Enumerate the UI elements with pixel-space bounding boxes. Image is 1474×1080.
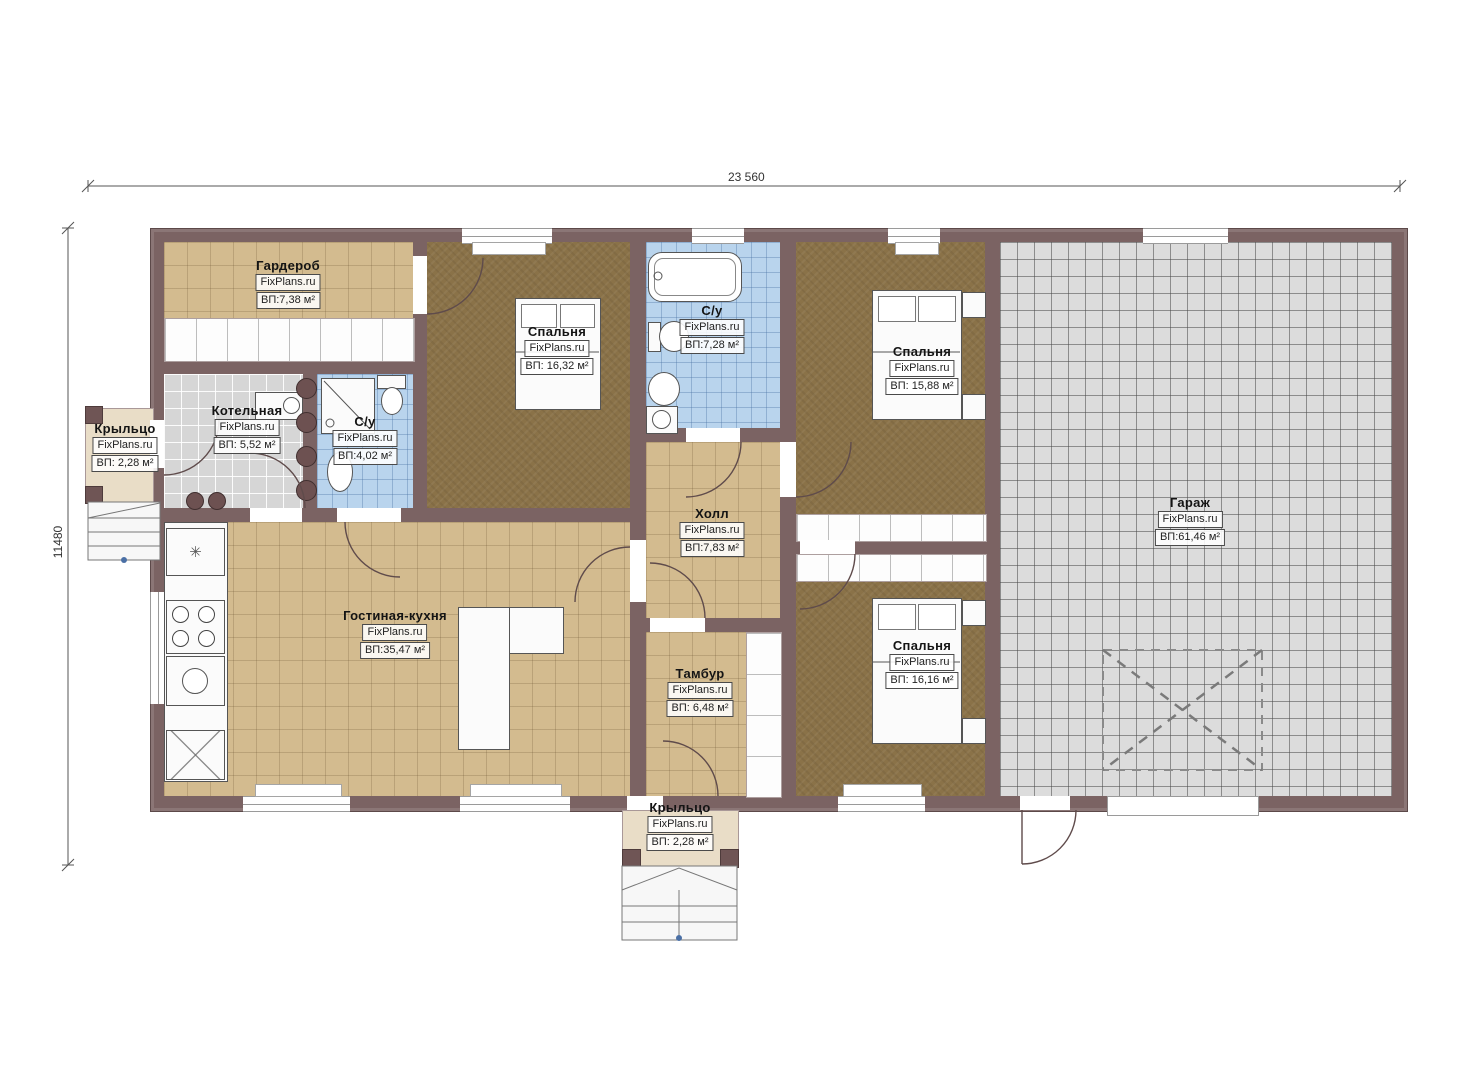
room-name: Гараж <box>1170 495 1210 510</box>
watermark: FixPlans.ru <box>679 319 744 336</box>
floor-plan: 23 560 11480 <box>0 0 1474 1080</box>
room-area: ВП: 2,28 м² <box>91 455 158 472</box>
pillow <box>918 604 956 630</box>
room-area: ВП:35,47 м² <box>360 642 430 659</box>
pillow <box>878 604 916 630</box>
garage-gate <box>1107 796 1259 816</box>
door-opening-bedroom-3 <box>800 540 855 554</box>
nightstand <box>962 600 986 626</box>
toilet-symbol <box>381 387 403 415</box>
watermark: FixPlans.ru <box>679 522 744 539</box>
watermark: FixPlans.ru <box>214 419 279 436</box>
window <box>838 796 925 812</box>
bedroom-2-wardrobe <box>796 514 987 542</box>
watermark: FixPlans.ru <box>524 340 589 357</box>
watermark: FixPlans.ru <box>362 624 427 641</box>
watermark: FixPlans.ru <box>92 437 157 454</box>
room-area: ВП:7,28 м² <box>680 337 744 354</box>
room-area: ВП: 6,48 м² <box>666 700 733 717</box>
dimension-top-label: 23 560 <box>728 170 765 184</box>
garage-side-door <box>1020 796 1070 810</box>
room-label-garderob: Гардероб FixPlans.ru ВП:7,38 м² <box>255 258 320 309</box>
radiator <box>895 242 939 255</box>
room-label-porch-bottom: Крыльцо FixPlans.ru ВП: 2,28 м² <box>646 800 713 851</box>
pillow <box>878 296 916 322</box>
room-floor-living-kitchen <box>164 522 630 796</box>
watermark: FixPlans.ru <box>332 430 397 447</box>
door-opening-bedroom-1 <box>413 256 427 314</box>
watermark: FixPlans.ru <box>255 274 320 291</box>
window <box>1143 228 1228 244</box>
room-label-boiler: Котельная FixPlans.ru ВП: 5,52 м² <box>212 403 283 454</box>
room-label-hall: Холл FixPlans.ru ВП:7,83 м² <box>679 506 744 557</box>
room-label-tambur: Тамбур FixPlans.ru ВП: 6,48 м² <box>666 666 733 717</box>
room-area: ВП: 2,28 м² <box>646 834 713 851</box>
radiator <box>843 784 922 797</box>
nightstand <box>962 394 986 420</box>
room-area: ВП: 15,88 м² <box>885 378 958 395</box>
dimension-left-label: 11480 <box>51 526 65 558</box>
pillow <box>918 296 956 322</box>
room-name: Крыльцо <box>649 800 710 815</box>
sink-symbol <box>648 372 680 406</box>
room-label-bedroom-1: Спальня FixPlans.ru ВП: 16,32 м² <box>520 324 593 375</box>
porch-pillar <box>622 849 641 868</box>
boiler-unit <box>186 492 204 510</box>
door-opening-bedroom-2 <box>780 442 796 497</box>
bedroom-3-wardrobe <box>796 554 987 582</box>
fridge-symbol: ✳ <box>166 528 225 576</box>
room-area: ВП: 5,52 м² <box>213 437 280 454</box>
radiator <box>255 784 342 797</box>
window <box>692 228 744 244</box>
porch-pillar <box>720 849 739 868</box>
cabinet-symbol <box>166 730 225 780</box>
watermark: FixPlans.ru <box>889 360 954 377</box>
radiator <box>470 784 562 797</box>
door-opening-bathroom-small <box>337 508 401 522</box>
room-area: ВП: 16,16 м² <box>885 672 958 689</box>
room-label-porch-left: Крыльцо FixPlans.ru ВП: 2,28 м² <box>91 421 158 472</box>
room-area: ВП: 16,32 м² <box>520 358 593 375</box>
room-name: Холл <box>695 506 729 521</box>
room-label-bathroom-top: С/у FixPlans.ru ВП:7,28 м² <box>679 303 744 354</box>
room-name: Гардероб <box>256 258 320 273</box>
room-name: Гостиная-кухня <box>343 608 447 623</box>
door-opening-boiler <box>250 508 302 522</box>
nightstand <box>962 292 986 318</box>
passage-hall-living <box>630 540 646 602</box>
room-name: Котельная <box>212 403 283 418</box>
room-name: С/у <box>701 303 722 318</box>
wardrobe-shelves <box>164 318 415 362</box>
sofa-symbol <box>458 607 510 750</box>
door-opening-tambur <box>650 618 705 632</box>
watermark: FixPlans.ru <box>889 654 954 671</box>
room-name: Крыльцо <box>94 421 155 436</box>
tambur-closet <box>746 632 782 798</box>
watermark: FixPlans.ru <box>647 816 712 833</box>
window <box>243 796 350 812</box>
room-name: Тамбур <box>676 666 725 681</box>
room-area: ВП:4,02 м² <box>333 448 397 465</box>
room-label-garage: Гараж FixPlans.ru ВП:61,46 м² <box>1155 495 1225 546</box>
room-label-bedroom-3: Спальня FixPlans.ru ВП: 16,16 м² <box>885 638 958 689</box>
room-name: Спальня <box>893 638 951 653</box>
nightstand <box>962 718 986 744</box>
window <box>460 796 570 812</box>
bathtub-symbol <box>648 252 742 302</box>
radiator <box>472 242 546 255</box>
porch-pillar <box>85 486 103 504</box>
room-name: С/у <box>354 414 375 429</box>
room-area: ВП:7,38 м² <box>256 292 320 309</box>
room-label-living-kitchen: Гостиная-кухня FixPlans.ru ВП:35,47 м² <box>343 608 447 659</box>
watermark: FixPlans.ru <box>1157 511 1222 528</box>
room-area: ВП:7,83 м² <box>680 540 744 557</box>
room-label-bathroom-small: С/у FixPlans.ru ВП:4,02 м² <box>332 414 397 465</box>
room-label-bedroom-2: Спальня FixPlans.ru ВП: 15,88 м² <box>885 344 958 395</box>
watermark: FixPlans.ru <box>667 682 732 699</box>
boiler-unit <box>208 492 226 510</box>
room-area: ВП:61,46 м² <box>1155 529 1225 546</box>
room-name: Спальня <box>893 344 951 359</box>
room-name: Спальня <box>528 324 586 339</box>
door-opening-bathroom-top <box>686 428 740 442</box>
